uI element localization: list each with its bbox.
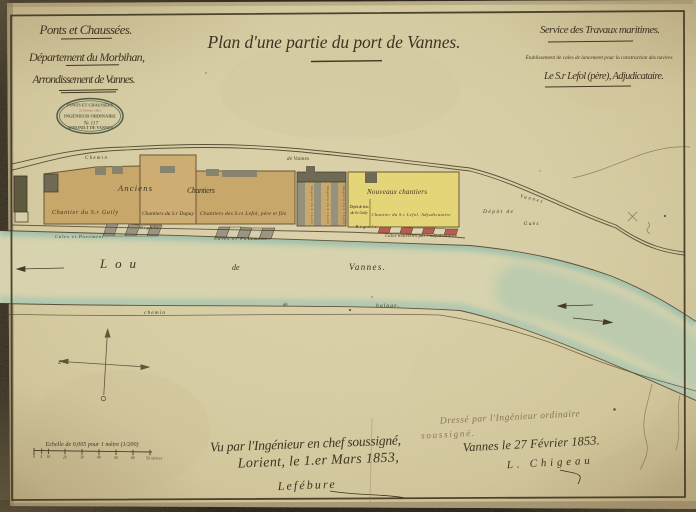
svg-text:de: de xyxy=(232,263,240,272)
svg-text:Chantiers du S.r Dupuy: Chantiers du S.r Dupuy xyxy=(142,211,195,217)
svg-text:Nouveaux chantiers: Nouveaux chantiers xyxy=(366,188,427,196)
svg-text:Arrondissement de Vannes.: Arrondissement de Vannes. xyxy=(32,74,136,86)
svg-text:30: 30 xyxy=(80,456,84,460)
svg-text:de Vannes: de Vannes xyxy=(287,157,309,162)
svg-text:du S.r Guily: du S.r Guily xyxy=(351,210,368,215)
svg-text:Magasin du S.r Lefol: Magasin du S.r Lefol xyxy=(310,185,314,224)
svg-text:Chantiers des S.rs Lefol, père: Chantiers des S.rs Lefol, père et fils xyxy=(200,210,286,217)
svg-text:Ponts et Chaussées.: Ponts et Chaussées. xyxy=(39,22,133,37)
svg-text:0: 0 xyxy=(33,455,35,459)
svg-text:Magasin du S.r Lefol: Magasin du S.r Lefol xyxy=(326,185,330,224)
svg-text:PONTS ET CHAUSSÉES: PONTS ET CHAUSSÉES xyxy=(67,103,114,108)
svg-text:50: 50 xyxy=(114,456,118,460)
svg-text:Dépôt de bois: Dépôt de bois xyxy=(349,204,369,209)
svg-text:Dépôt de: Dépôt de xyxy=(482,209,514,215)
svg-text:40: 40 xyxy=(97,456,101,460)
svg-text:Echelle de 0,005 pour 1 mètre: Echelle de 0,005 pour 1 mètre (1/200) xyxy=(45,441,139,448)
svg-text:Plan d'une partie du port de V: Plan d'une partie du port de Vannes. xyxy=(207,32,461,52)
svg-text:Anciens: Anciens xyxy=(117,183,153,193)
svg-text:Chantier du S.r Guily: Chantier du S.r Guily xyxy=(52,210,118,216)
svg-text:Chantiers: Chantiers xyxy=(187,186,215,195)
svg-text:Vannes.: Vannes. xyxy=(349,262,385,272)
svg-text:Cales et Pavement: Cales et Pavement xyxy=(55,234,104,239)
svg-text:halage.: halage. xyxy=(376,303,399,309)
svg-text:chemin: chemin xyxy=(144,310,165,316)
svg-text:21 Février 1853: 21 Février 1853 xyxy=(79,109,101,113)
svg-text:Cales et Pavement: Cales et Pavement xyxy=(214,236,267,241)
svg-text:Guès: Guès xyxy=(524,221,539,227)
svg-text:Rigole: Rigole xyxy=(139,225,158,230)
svg-text:INGÉNIEUR ORDINAIRE: INGÉNIEUR ORDINAIRE xyxy=(64,114,116,119)
svg-text:Le S.r Lefol (père), Adjudicat: Le S.r Lefol (père), Adjudicataire. xyxy=(543,71,664,82)
svg-text:10: 10 xyxy=(47,455,51,459)
svg-text:Service des Travaux maritimes.: Service des Travaux maritimes. xyxy=(540,24,660,36)
svg-text:Cales nouvelles par l'adjudica: Cales nouvelles par l'adjudicataire xyxy=(385,233,457,238)
svg-text:№ 117: № 117 xyxy=(83,121,99,127)
svg-text:Magasin du S.r Lefol: Magasin du S.r Lefol xyxy=(342,185,346,224)
svg-text:50 mètres: 50 mètres xyxy=(146,456,163,460)
svg-text:5: 5 xyxy=(41,455,43,459)
svg-text:Lou: Lou xyxy=(99,256,137,271)
svg-text:Établissement de cales de lanc: Établissement de cales de lancement pour… xyxy=(525,53,673,61)
svg-text:20: 20 xyxy=(63,455,67,459)
svg-text:60: 60 xyxy=(131,456,135,460)
svg-text:Département du Morbihan,: Département du Morbihan, xyxy=(28,50,145,64)
